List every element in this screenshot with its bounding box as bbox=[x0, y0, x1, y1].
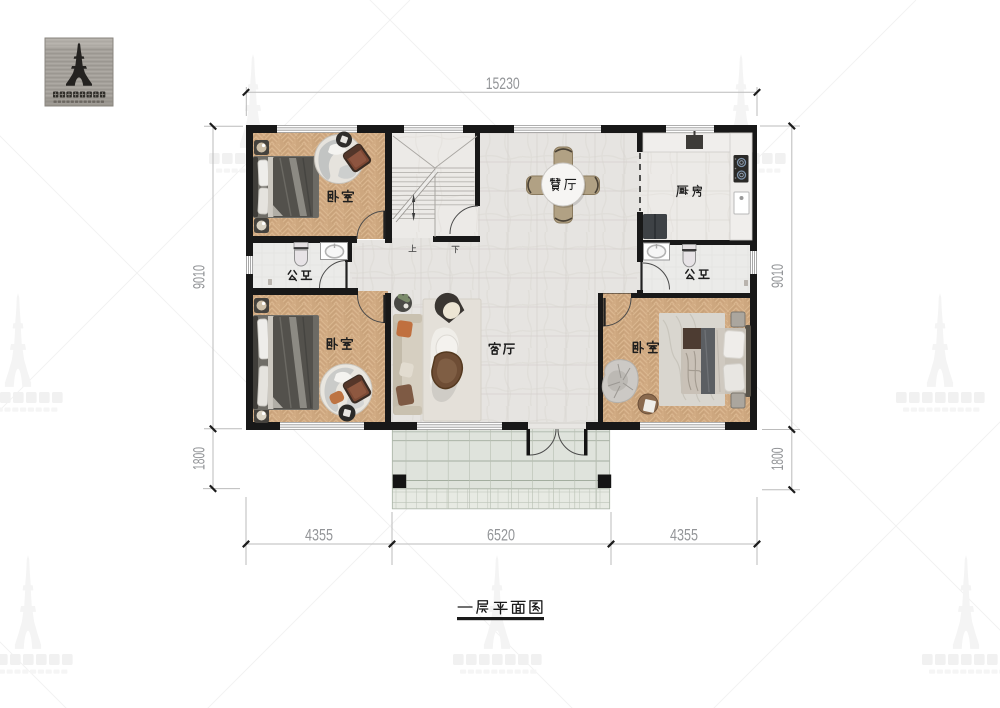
svg-text:9010: 9010 bbox=[190, 265, 209, 289]
svg-text:15230: 15230 bbox=[486, 74, 520, 93]
svg-text:9010: 9010 bbox=[768, 264, 787, 288]
svg-text:4355: 4355 bbox=[305, 526, 333, 545]
svg-text:1800: 1800 bbox=[190, 447, 209, 470]
svg-text:6520: 6520 bbox=[487, 526, 515, 545]
svg-text:1800: 1800 bbox=[768, 448, 787, 471]
svg-text:4355: 4355 bbox=[670, 526, 698, 545]
